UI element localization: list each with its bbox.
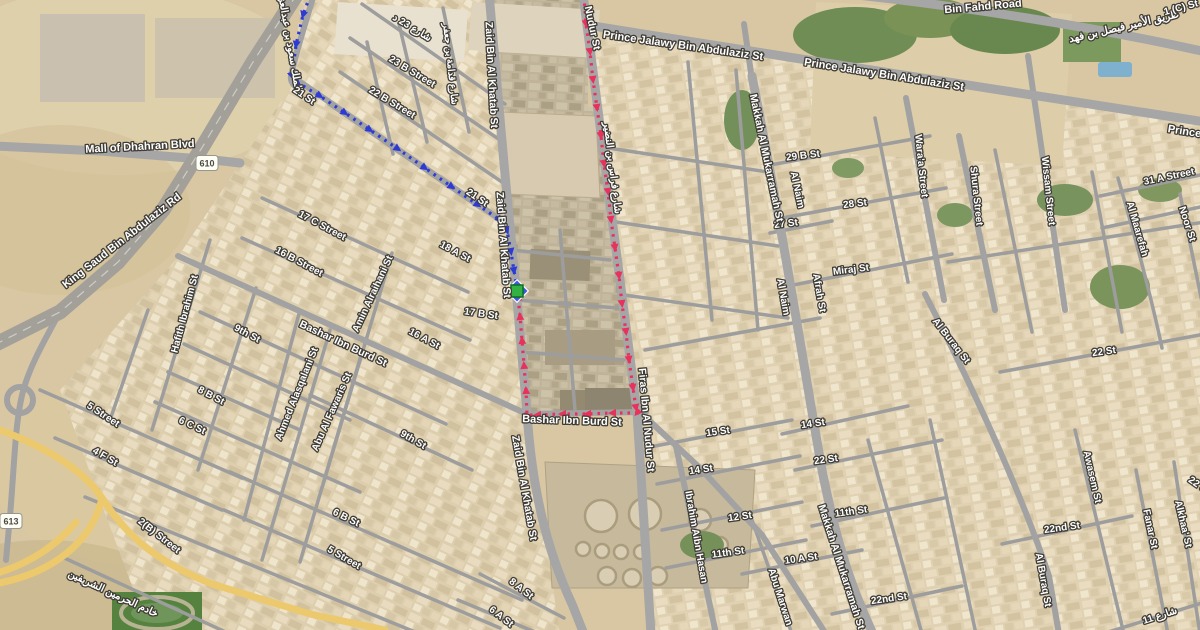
mall-building [40,14,145,102]
route-shield: 613 [0,514,22,529]
route-shield: 610 [196,156,218,171]
map-canvas[interactable]: 610613 Mall of Dhahran BlvdKing Saud Bin… [0,0,1200,630]
industrial-building [585,388,633,412]
warehouse-roof [500,112,600,198]
pool [1098,62,1132,77]
shield-number: 613 [3,517,18,527]
satellite-map: 610613 Mall of Dhahran BlvdKing Saud Bin… [0,0,1200,630]
shield-number: 610 [199,159,214,169]
